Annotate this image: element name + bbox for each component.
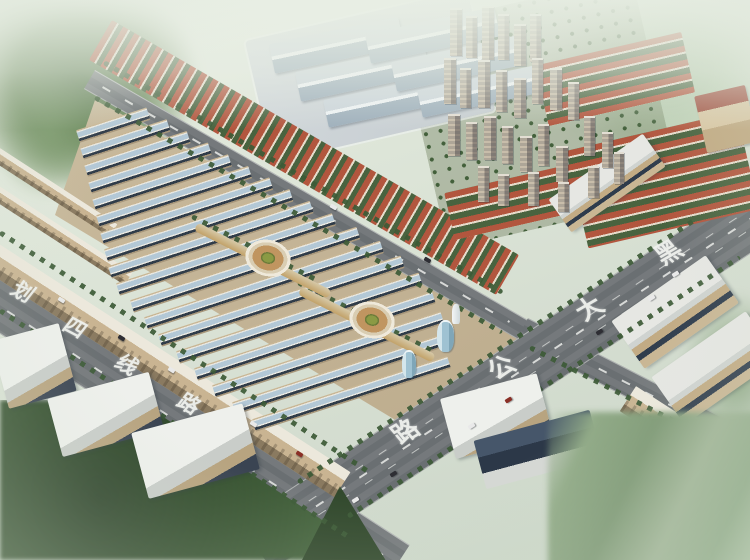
high-rise-tower [450, 8, 462, 56]
high-rise-tower [602, 132, 613, 168]
high-rise-tower [514, 24, 526, 66]
high-rise-tower [538, 124, 549, 166]
high-rise-tower [496, 70, 507, 112]
high-rise-tower [550, 68, 562, 110]
high-rise-tower [448, 114, 460, 156]
high-rise-tower [520, 136, 532, 172]
high-rise-tower [558, 182, 569, 212]
high-rise-tower [614, 152, 624, 184]
white-spire [452, 304, 460, 324]
high-rise-tower [530, 14, 541, 62]
high-rise-tower [466, 122, 477, 160]
high-rise-tower [588, 166, 599, 198]
high-rise-tower [482, 6, 494, 60]
high-rise-tower [478, 60, 490, 108]
high-rise-tower [484, 116, 496, 160]
aerial-rendering-canvas: 划 四 线 路 黑 大 公 路 [0, 0, 750, 560]
bottom-right-smeared-field [548, 412, 750, 560]
high-rise-tower [478, 166, 489, 202]
high-rise-tower [528, 172, 539, 206]
high-rise-tower [556, 146, 568, 182]
high-rise-tower [498, 174, 509, 206]
high-rise-tower [532, 58, 543, 104]
high-rise-tower [584, 116, 595, 156]
high-rise-tower [502, 126, 513, 164]
high-rise-tower [568, 82, 579, 120]
high-rise-tower [466, 16, 477, 58]
cylindrical-tower [402, 350, 416, 378]
high-rise-tower [460, 68, 471, 108]
high-rise-tower [444, 58, 456, 104]
high-rise-tower [514, 78, 526, 118]
high-rise-tower [498, 14, 509, 60]
cylindrical-tower [437, 320, 454, 352]
